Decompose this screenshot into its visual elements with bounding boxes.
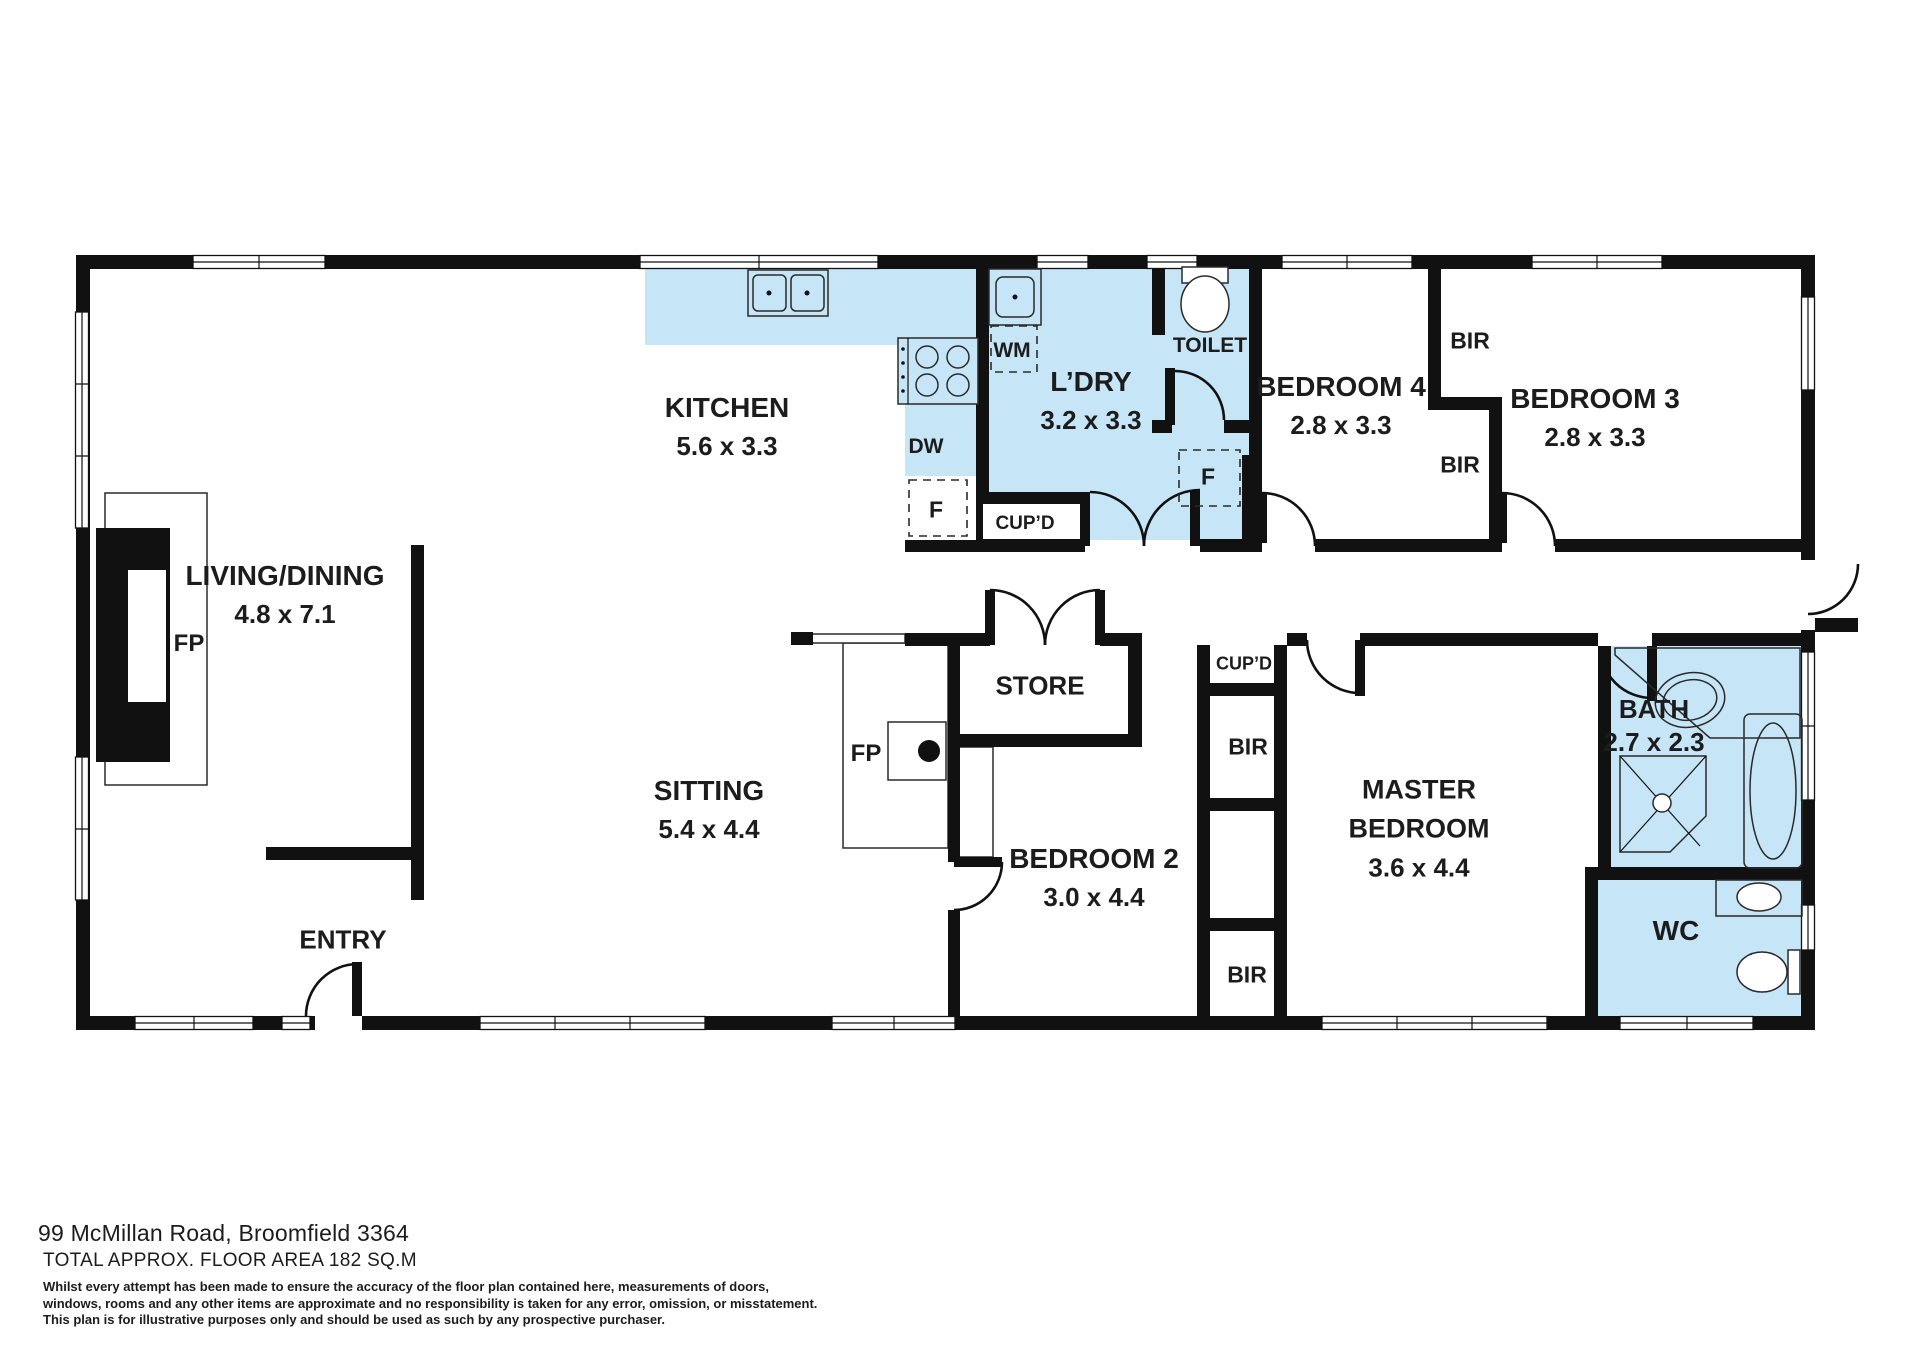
sitting-fireplace-flue-icon [918, 740, 940, 762]
fridge-label-kitchen: F [929, 497, 943, 524]
front-door-leaf [352, 962, 362, 1016]
room-name: BEDROOM 3 [1510, 380, 1680, 418]
room-name: MASTER [1349, 771, 1490, 810]
entry-label: ENTRY [299, 925, 386, 956]
disclaimer: Whilst every attempt has been made to en… [38, 1279, 1018, 1329]
footer: 99 McMillan Road, Broomfield 3364 TOTAL … [38, 1220, 1018, 1329]
bedroom2-label: BEDROOM 2 3.0 x 4.4 [1009, 840, 1179, 916]
toilet-icon [1181, 267, 1229, 332]
washing-machine-label: WM [993, 339, 1030, 363]
room-dims: 4.8 x 7.1 [185, 595, 384, 633]
fridge-label-laundry: F [1201, 464, 1215, 491]
bir-label-2: BIR [1440, 452, 1480, 479]
room-dims: 3.0 x 4.4 [1009, 878, 1179, 916]
room-name: BATH [1603, 693, 1704, 726]
store-door-arc-right [1045, 590, 1100, 645]
fireplace-label-living: FP [174, 630, 205, 658]
sitting-label: SITTING 5.4 x 4.4 [654, 772, 764, 848]
wc-label: WC [1653, 915, 1700, 947]
kitchen-label: KITCHEN 5.6 x 3.3 [665, 389, 789, 465]
front-door-arc [306, 964, 358, 1016]
bir-label-4: BIR [1227, 962, 1267, 989]
living-fireplace-inner [128, 570, 166, 702]
room-dims: 5.4 x 4.4 [654, 810, 764, 848]
room-dims: 2.8 x 3.3 [1256, 406, 1426, 444]
bedroom4-door-arc [1262, 493, 1315, 546]
wc-toilet-icon [1737, 950, 1800, 994]
bedroom2-robe-nook [957, 747, 993, 857]
bedroom3-door-leaf [1497, 493, 1507, 543]
bir-label-1: BIR [1450, 328, 1490, 355]
store-door-leaf-left [985, 590, 995, 645]
room-dims: 3.6 x 4.4 [1349, 849, 1490, 888]
disclaimer-line: This plan is for illustrative purposes o… [43, 1312, 1018, 1329]
room-name: BEDROOM [1349, 810, 1490, 849]
living-dining-label: LIVING/DINING 4.8 x 7.1 [185, 557, 384, 633]
cooktop-icon [898, 338, 978, 404]
property-address: 99 McMillan Road, Broomfield 3364 [38, 1220, 1018, 1247]
room-name: BEDROOM 4 [1256, 368, 1426, 406]
bedroom4-label: BEDROOM 4 2.8 x 3.3 [1256, 368, 1426, 444]
disclaimer-line: windows, rooms and any other items are a… [43, 1296, 1018, 1313]
master-door-leaf [1355, 640, 1365, 696]
bedroom3-label: BEDROOM 3 2.8 x 3.3 [1510, 380, 1680, 456]
room-dims: 5.6 x 3.3 [665, 427, 789, 465]
room-dims: 3.2 x 3.3 [1040, 401, 1141, 439]
disclaimer-line: Whilst every attempt has been made to en… [43, 1279, 1018, 1296]
store-door-arc-left [990, 590, 1045, 645]
bedroom3-door-arc [1502, 493, 1555, 546]
laundry-door-leaf-left [1080, 492, 1090, 546]
fireplace-label-sitting: FP [851, 740, 882, 768]
bir-label-3: BIR [1228, 734, 1268, 761]
laundry-door-leaf-right [1190, 490, 1200, 546]
room-name: LIVING/DINING [185, 557, 384, 595]
room-name: BEDROOM 2 [1009, 840, 1179, 878]
room-dims: 2.7 x 2.3 [1603, 726, 1704, 759]
room-dims: 2.8 x 3.3 [1510, 418, 1680, 456]
master-door-arc [1307, 640, 1360, 693]
toilet-door-leaf [1165, 368, 1175, 425]
bedroom4-door-leaf [1257, 493, 1267, 543]
store-door-leaf-right [1095, 590, 1105, 645]
room-name: SITTING [654, 772, 764, 810]
dishwasher-label: DW [909, 435, 944, 459]
cupboard-label-bedroom: CUP’D [1216, 654, 1272, 675]
bedroom2-door-leaf [954, 857, 1002, 867]
store-label: STORE [995, 671, 1084, 702]
bath-label: BATH 2.7 x 2.3 [1603, 693, 1704, 759]
laundry-label: L’DRY 3.2 x 3.3 [1040, 363, 1141, 439]
room-name: KITCHEN [665, 389, 789, 427]
floor-area-text: TOTAL APPROX. FLOOR AREA 182 SQ.M [38, 1250, 1018, 1272]
cupboard-label-hall: CUP’D [995, 513, 1054, 535]
hall-side-door-arc [1808, 564, 1858, 614]
floor-plan-page: LIVING/DINING 4.8 x 7.1 KITCHEN 5.6 x 3.… [0, 0, 1920, 1358]
master-bedroom-label: MASTER BEDROOM 3.6 x 4.4 [1349, 771, 1490, 888]
floor-plan-drawing [0, 0, 1920, 1358]
bedroom2-door-arc [954, 862, 1002, 910]
toilet-label: TOILET [1173, 334, 1247, 358]
furniture-outlines [105, 493, 993, 857]
room-name: L’DRY [1040, 363, 1141, 401]
